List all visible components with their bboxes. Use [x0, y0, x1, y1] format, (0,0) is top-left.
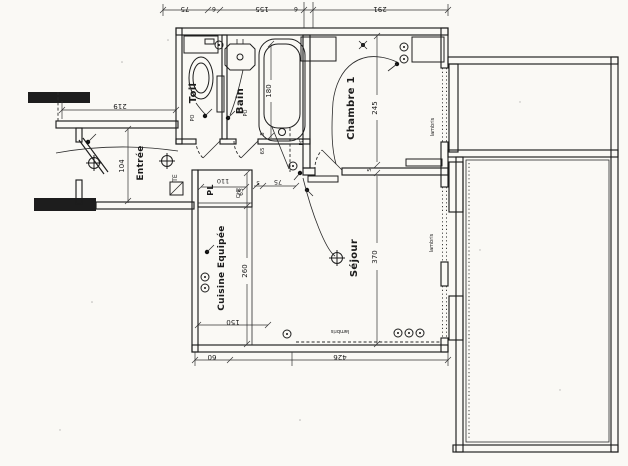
- terrace-inner-line: [466, 160, 609, 442]
- ann-lambris-3: lambris: [330, 328, 349, 334]
- wc-flush: [205, 39, 214, 44]
- chambre-cupboard-right: [412, 37, 444, 62]
- chambre-cupboard-left: [301, 37, 336, 61]
- dim-245: 245: [371, 101, 379, 114]
- terrace-wall-left: [456, 157, 463, 452]
- radiator-chambre: [406, 159, 442, 166]
- door-sejour-leaf: [272, 127, 289, 169]
- dim-5c: 5: [367, 168, 373, 172]
- dim-370: 370: [371, 250, 379, 263]
- wall-chambre-west: [303, 35, 310, 168]
- bath-shelf: [217, 76, 224, 112]
- dim-180: 180: [265, 84, 273, 97]
- dim-426: 426: [333, 353, 347, 361]
- wall-sejour-north: [303, 168, 315, 175]
- bathtub-drain: [279, 129, 286, 136]
- dim-110: 110: [217, 177, 229, 185]
- socket-icon: [201, 41, 424, 338]
- wall-kitchen-west: [192, 170, 198, 352]
- dim-104: 104: [118, 159, 126, 173]
- dim-top-155: 155: [255, 5, 268, 13]
- dim-top-6a: 6: [212, 5, 216, 12]
- door-toil-swing: [196, 141, 203, 158]
- room-label-sejour: Séjour: [348, 239, 360, 277]
- plan-canvas: Toil Bain Entrée Chambre 1 Séjour Cuisin…: [0, 0, 628, 466]
- floor-plan-drawing: Toil Bain Entrée Chambre 1 Séjour Cuisin…: [0, 0, 628, 466]
- wall-north: [176, 28, 448, 35]
- dim-65a: 65: [260, 147, 266, 154]
- door-toil-leaf: [203, 141, 220, 158]
- terrace-wall-right: [611, 57, 618, 452]
- room-label-entree: Entrée: [135, 145, 146, 180]
- terrace-wall-top: [448, 150, 618, 157]
- dim-60: 60: [208, 353, 217, 361]
- room-label-pl: PL: [206, 184, 215, 196]
- wall-facade: [441, 262, 448, 286]
- terrace-wall-bottom: [453, 445, 618, 452]
- dim-150: 150: [226, 318, 239, 326]
- washbasin-drain: [237, 54, 243, 60]
- dim-top-75: 75: [181, 5, 190, 13]
- ann-po: PO: [190, 114, 196, 121]
- dim-75: 75: [274, 178, 282, 186]
- dim-5b: 5: [256, 179, 260, 185]
- door-chambre-leaf: [322, 150, 342, 170]
- te-box-mark: [170, 182, 183, 195]
- room-label-cuisine: Cuisine Equipée: [216, 225, 227, 310]
- dim-219: 219: [113, 102, 126, 110]
- door-entrance-leaf: [79, 140, 104, 174]
- ann-lambris-1: lambris: [430, 117, 436, 136]
- terrace-pier: [449, 64, 458, 152]
- wall-topleft-stub: [28, 92, 90, 103]
- dim-260: 260: [241, 264, 249, 277]
- room-label-chambre: Chambre 1: [346, 76, 357, 140]
- dim-top-6b: 6: [294, 5, 298, 12]
- ann-che: CHE: [236, 188, 242, 198]
- ann-po: PO: [243, 109, 249, 116]
- terrace: [448, 57, 618, 452]
- wall-entree-west: [76, 128, 82, 142]
- dim-top-291: 291: [373, 5, 386, 13]
- wall-sejour-north: [342, 168, 448, 175]
- room-label-toil: Toil: [188, 83, 199, 103]
- ann-po: PO: [299, 138, 305, 145]
- terrace-upper-edge: [448, 57, 618, 64]
- wall-south: [192, 345, 448, 352]
- wall-bath-south: [176, 139, 196, 144]
- door-bain-leaf: [241, 141, 258, 158]
- door-chambre-swing: [315, 150, 322, 170]
- radiator-sejour: [308, 176, 338, 182]
- dim-5a: 5: [260, 132, 266, 136]
- ceiling-light-icon: [159, 153, 175, 169]
- wall-entree-south: [96, 202, 194, 209]
- wall-bath-west: [176, 28, 182, 144]
- ann-te: TE: [172, 174, 179, 183]
- washbasin: [225, 44, 255, 70]
- wall-entree-north: [56, 121, 178, 128]
- wall-entree-south-stub: [34, 198, 96, 211]
- ann-lambris-2: lambris: [429, 233, 435, 252]
